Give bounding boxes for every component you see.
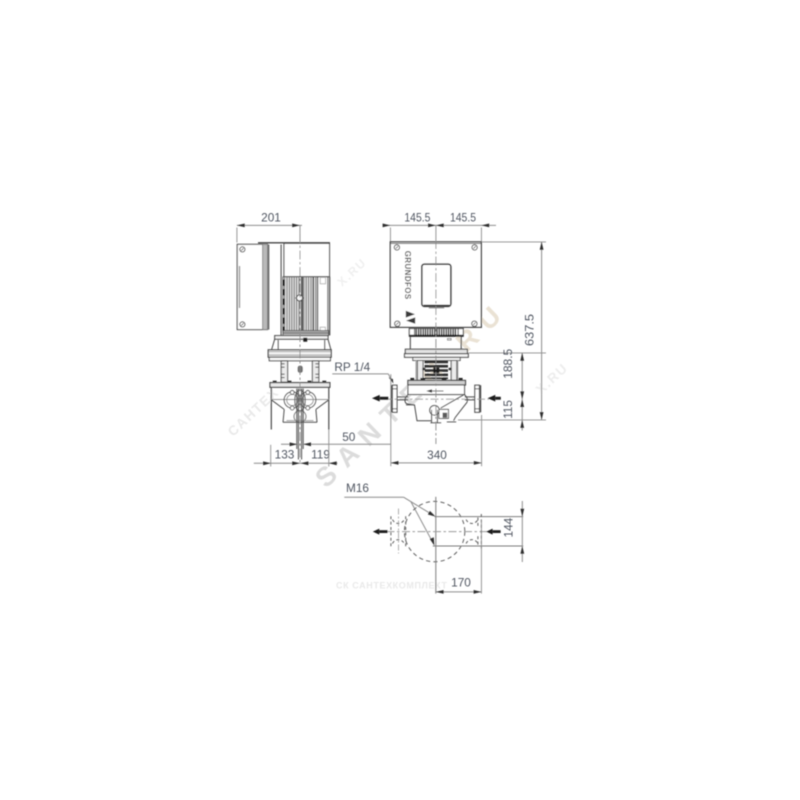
svg-text:GRUNDFOS: GRUNDFOS bbox=[403, 251, 412, 300]
svg-text:133: 133 bbox=[275, 448, 295, 462]
svg-text:340: 340 bbox=[427, 448, 447, 462]
svg-text:50: 50 bbox=[342, 430, 356, 444]
svg-text:119: 119 bbox=[311, 448, 330, 462]
svg-text:144: 144 bbox=[502, 517, 516, 537]
svg-text:RP 1/4: RP 1/4 bbox=[334, 360, 370, 374]
svg-text:145.5: 145.5 bbox=[404, 210, 430, 224]
svg-text:637.5: 637.5 bbox=[522, 314, 536, 346]
svg-text:145.5: 145.5 bbox=[450, 210, 476, 224]
svg-text:M16: M16 bbox=[346, 481, 369, 495]
svg-text:115: 115 bbox=[501, 400, 515, 419]
svg-text:201: 201 bbox=[261, 211, 281, 225]
svg-text:170: 170 bbox=[451, 575, 471, 589]
svg-text:188.5: 188.5 bbox=[501, 348, 515, 378]
svg-text:СК САНТЕХКОМПЛЕКТ: СК САНТЕХКОМПЛЕКТ bbox=[336, 581, 447, 591]
